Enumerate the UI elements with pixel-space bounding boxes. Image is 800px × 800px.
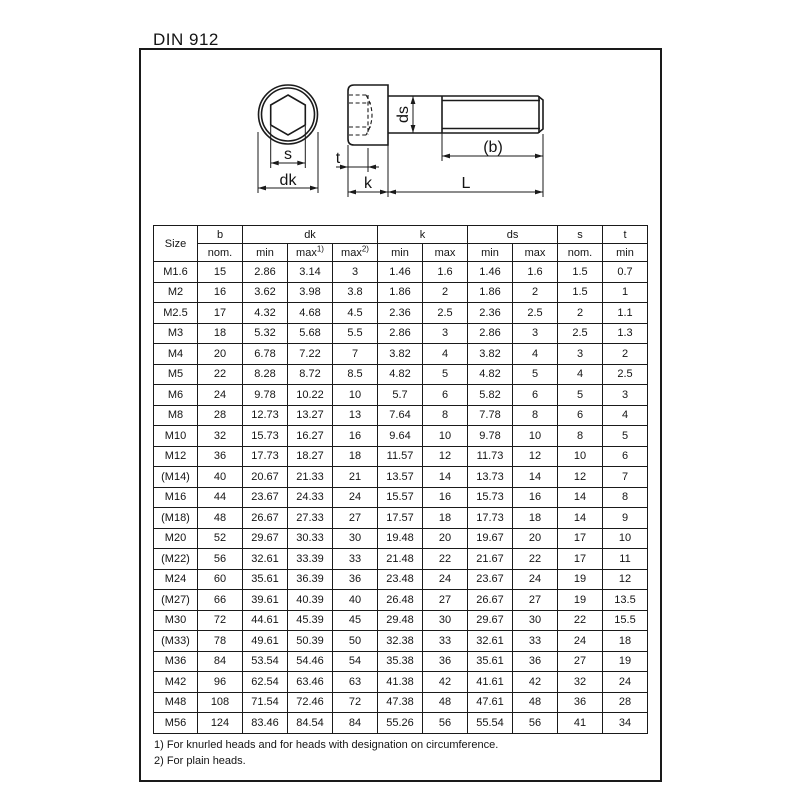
footnote-1: 1) For knurled heads and for heads with … [154,739,498,751]
table-cell: 27 [558,651,603,672]
table-cell: M56 [154,713,198,734]
table-cell: 22 [513,549,558,570]
table-cell: 47.38 [378,692,423,713]
table-cell: 62.54 [243,672,288,693]
table-cell: 36.39 [288,569,333,590]
subheader-ds-max: max [513,244,558,262]
table-cell: 50.39 [288,631,333,652]
table-cell: 5.5 [333,323,378,344]
table-cell: 9.78 [243,385,288,406]
table-row: (M14)4020.6721.332113.571413.7314127 [154,467,648,488]
table-row: M4206.787.2273.8243.82432 [154,344,648,365]
table-cell: 35.61 [243,569,288,590]
table-cell: 45.39 [288,610,333,631]
table-cell: M2 [154,282,198,303]
table-cell: 40 [333,590,378,611]
table-cell: 18 [513,508,558,529]
table-cell: 8 [513,405,558,426]
table-cell: 47.61 [468,692,513,713]
table-cell: 49.61 [243,631,288,652]
table-cell: 27 [513,590,558,611]
table-cell: 27.33 [288,508,333,529]
table-cell: 3 [423,323,468,344]
table-row: M103215.7316.27169.64109.781085 [154,426,648,447]
table-cell: 10 [603,528,648,549]
table-cell: 4.32 [243,303,288,324]
table-cell: 33 [513,631,558,652]
table-row: M368453.5454.465435.383635.61362719 [154,651,648,672]
table-cell: 8 [423,405,468,426]
table-cell: 32.61 [468,631,513,652]
table-cell: 23.67 [243,487,288,508]
table-cell: 8.72 [288,364,333,385]
table-cell: 20.67 [243,467,288,488]
col-header-ds: ds [468,226,558,244]
table-cell: 5.32 [243,323,288,344]
table-cell: 55.26 [378,713,423,734]
side-view: t k L (b) ds [336,85,543,197]
table-cell: 1.3 [603,323,648,344]
table-cell: 27 [333,508,378,529]
col-header-size: Size [154,226,198,262]
table-cell: 27 [423,590,468,611]
table-cell: 84 [333,713,378,734]
table-row: M164423.6724.332415.571615.7316148 [154,487,648,508]
table-cell: 6 [513,385,558,406]
table-cell: 24 [558,631,603,652]
table-cell: 18.27 [288,446,333,467]
table-cell: 7.64 [378,405,423,426]
dim-k: k [348,175,388,194]
table-cell: 24 [423,569,468,590]
dim-dk: dk [258,172,318,190]
table-cell: 55.54 [468,713,513,734]
table-cell: 72 [333,692,378,713]
table-cell: 10 [333,385,378,406]
table-header: Size b dk k ds s t nom. min max1) max2) … [154,226,648,262]
table-row: M2163.623.983.81.8621.8621.51 [154,282,648,303]
table-cell: M24 [154,569,198,590]
table-cell: 36 [558,692,603,713]
table-cell: 33.39 [288,549,333,570]
table-cell: 4.82 [378,364,423,385]
table-cell: 32 [558,672,603,693]
table-cell: 2 [603,344,648,365]
table-row: M82812.7313.27137.6487.78864 [154,405,648,426]
table-cell: 23.48 [378,569,423,590]
table-cell: 26.67 [468,590,513,611]
table-cell: 2.5 [513,303,558,324]
table-cell: 30 [333,528,378,549]
table-cell: 60 [198,569,243,590]
table-cell: 17 [558,528,603,549]
table-cell: (M22) [154,549,198,570]
table-cell: 13.57 [378,467,423,488]
label-dk: dk [280,172,298,189]
table-cell: 0.7 [603,262,648,283]
table-cell: 2.86 [468,323,513,344]
table-cell: 16.27 [288,426,333,447]
table-row: (M33)7849.6150.395032.383332.61332418 [154,631,648,652]
table-cell: 13.27 [288,405,333,426]
table-cell: 9.78 [468,426,513,447]
screw-drawing: s dk [240,80,560,202]
table-cell: 24 [333,487,378,508]
table-cell: 9 [603,508,648,529]
table-cell: 19 [558,590,603,611]
table-cell: 5 [603,426,648,447]
table-cell: 4 [513,344,558,365]
dim-ds: ds [395,96,415,133]
table-cell: 8.5 [333,364,378,385]
table-cell: 1.6 [423,262,468,283]
table-cell: 22 [198,364,243,385]
table-cell: 10 [558,446,603,467]
footnote-ref-2: 2) [362,244,369,253]
table-cell: 8 [558,426,603,447]
table-cell: 20 [423,528,468,549]
table-cell: 20 [513,528,558,549]
table-cell: 23.67 [468,569,513,590]
table-cell: 6.78 [243,344,288,365]
table-cell: 35.61 [468,651,513,672]
table-cell: 10.22 [288,385,333,406]
table-cell: 1.86 [468,282,513,303]
table-cell: 9.64 [378,426,423,447]
table-cell: 63.46 [288,672,333,693]
table-row: M6249.7810.22105.765.82653 [154,385,648,406]
table-cell: 24 [603,672,648,693]
table-cell: M12 [154,446,198,467]
table-cell: 18 [423,508,468,529]
table-cell: 18 [333,446,378,467]
label-k: k [364,175,373,192]
table-cell: 12 [558,467,603,488]
table-cell: 12 [513,446,558,467]
table-cell: 6 [423,385,468,406]
table-cell: 84.54 [288,713,333,734]
table-cell: 72.46 [288,692,333,713]
table-cell: (M14) [154,467,198,488]
table-cell: 5.82 [468,385,513,406]
table-row: M5612483.4684.548455.265655.54564134 [154,713,648,734]
table-cell: 16 [198,282,243,303]
table-cell: 16 [423,487,468,508]
table-cell: M30 [154,610,198,631]
table-cell: 7 [603,467,648,488]
subheader-k-max: max [423,244,468,262]
table-cell: 54.46 [288,651,333,672]
table-row: (M22)5632.6133.393321.482221.67221711 [154,549,648,570]
table-cell: 48 [423,692,468,713]
table-cell: 32.38 [378,631,423,652]
table-cell: 4.68 [288,303,333,324]
table-cell: 13.5 [603,590,648,611]
table-row: M123617.7318.271811.571211.7312106 [154,446,648,467]
col-header-k: k [378,226,468,244]
table-cell: M3 [154,323,198,344]
table-cell: 3.82 [468,344,513,365]
col-header-s: s [558,226,603,244]
table-cell: 53.54 [243,651,288,672]
table-cell: 4 [558,364,603,385]
table-cell: 4.82 [468,364,513,385]
table-row: M429662.5463.466341.384241.61423224 [154,672,648,693]
label-ds: ds [395,106,412,123]
table-cell: 28 [603,692,648,713]
table-cell: 1.5 [558,282,603,303]
table-cell: 1.46 [468,262,513,283]
table-cell: M42 [154,672,198,693]
col-header-b: b [198,226,243,244]
table-cell: 96 [198,672,243,693]
table-row: M2.5174.324.684.52.362.52.362.521.1 [154,303,648,324]
table-cell: 2.5 [603,364,648,385]
table-cell: 1.6 [513,262,558,283]
table-cell: 108 [198,692,243,713]
table-cell: 5.68 [288,323,333,344]
table-cell: M16 [154,487,198,508]
col-header-dk: dk [243,226,378,244]
table-row: (M27)6639.6140.394026.482726.67271913.5 [154,590,648,611]
table-cell: 7 [333,344,378,365]
table-cell: 12 [603,569,648,590]
table-cell: 26.48 [378,590,423,611]
table-cell: 3.98 [288,282,333,303]
table-cell: 63 [333,672,378,693]
table-cell: 2.36 [378,303,423,324]
dim-b: (b) [442,139,543,158]
table-cell: 10 [513,426,558,447]
table-cell: 40.39 [288,590,333,611]
table-cell: 20 [198,344,243,365]
table-cell: 6 [603,446,648,467]
table-cell: 16 [333,426,378,447]
table-cell: M36 [154,651,198,672]
subheader-dk-min: min [243,244,288,262]
table-cell: 36 [333,569,378,590]
table-cell: 45 [333,610,378,631]
table-cell: 29.67 [243,528,288,549]
table-cell: 14 [558,508,603,529]
table-cell: 66 [198,590,243,611]
table-cell: 2 [423,282,468,303]
table-cell: 19 [558,569,603,590]
dimensions-table: Size b dk k ds s t nom. min max1) max2) … [153,225,648,734]
table-cell: 5.7 [378,385,423,406]
table-cell: 12.73 [243,405,288,426]
table-row: M3185.325.685.52.8632.8632.51.3 [154,323,648,344]
table-cell: 3 [558,344,603,365]
thread [442,96,543,133]
table-cell: 41.61 [468,672,513,693]
table-cell: 83.46 [243,713,288,734]
table-cell: 17.73 [468,508,513,529]
hex-socket [271,95,306,135]
table-cell: 24 [198,385,243,406]
table-cell: 3 [513,323,558,344]
table-cell: 30 [513,610,558,631]
footnote-ref-1: 1) [317,244,324,253]
table-cell: 2.86 [378,323,423,344]
table-cell: 36 [513,651,558,672]
table-cell: 5 [513,364,558,385]
table-cell: 1.86 [378,282,423,303]
subheader-ds-min: min [468,244,513,262]
table-row: M307244.6145.394529.483029.67302215.5 [154,610,648,631]
table-cell: 14 [513,467,558,488]
table-cell: 2.36 [468,303,513,324]
table-cell: 1.46 [378,262,423,283]
table-cell: M48 [154,692,198,713]
col-header-t: t [603,226,648,244]
table-cell: 56 [513,713,558,734]
table-cell: 17.57 [378,508,423,529]
table-cell: 14 [423,467,468,488]
table-cell: 36 [423,651,468,672]
table-cell: 56 [198,549,243,570]
footnote-2: 2) For plain heads. [154,755,246,767]
table-cell: 18 [198,323,243,344]
front-view: s dk [258,85,318,193]
table-cell: 11.57 [378,446,423,467]
table-cell: 32 [198,426,243,447]
table-cell: 17 [198,303,243,324]
table-cell: 2.5 [558,323,603,344]
table-cell: 30.33 [288,528,333,549]
table-cell: 2 [513,282,558,303]
table-cell: 15.57 [378,487,423,508]
table-cell: 48 [198,508,243,529]
table-cell: 4 [423,344,468,365]
table-cell: 22 [423,549,468,570]
table-cell: 40 [198,467,243,488]
table-cell: 10 [423,426,468,447]
table-cell: 15.73 [468,487,513,508]
table-cell: 21.48 [378,549,423,570]
table-cell: 28 [198,405,243,426]
table-cell: 22 [558,610,603,631]
side-extension-lines [348,133,543,197]
subheader-dk-max2: max2) [333,244,378,262]
table-cell: 44 [198,487,243,508]
hidden-socket-lines [349,95,372,135]
table-row: M246035.6136.393623.482423.67241912 [154,569,648,590]
table-cell: 84 [198,651,243,672]
table-cell: 19.67 [468,528,513,549]
table-cell: 34 [603,713,648,734]
table-cell: 33 [423,631,468,652]
subheader-b-nom: nom. [198,244,243,262]
table-cell: 50 [333,631,378,652]
table-cell: 2.86 [243,262,288,283]
table-cell: 26.67 [243,508,288,529]
table-cell: 72 [198,610,243,631]
table-cell: 12 [423,446,468,467]
table-cell: 7.78 [468,405,513,426]
table-cell: 48 [513,692,558,713]
table-cell: 3.8 [333,282,378,303]
table-cell: 35.38 [378,651,423,672]
table-cell: 16 [513,487,558,508]
label-s: s [284,146,292,163]
page-title: DIN 912 [153,30,219,50]
table-row: M4810871.5472.467247.384847.61483628 [154,692,648,713]
table-row: (M18)4826.6727.332717.571817.7318149 [154,508,648,529]
table-cell: 24.33 [288,487,333,508]
table-cell: 3.62 [243,282,288,303]
table-cell: 4 [603,405,648,426]
table-cell: 41.38 [378,672,423,693]
table-cell: 3.14 [288,262,333,283]
table-cell: 32.61 [243,549,288,570]
table-cell: 8 [603,487,648,508]
table-cell: 13 [333,405,378,426]
table-cell: 30 [423,610,468,631]
table-cell: 56 [423,713,468,734]
table-cell: 5 [423,364,468,385]
label-b: (b) [483,139,503,156]
table-cell: 1.5 [558,262,603,283]
table-cell: 6 [558,405,603,426]
table-cell: 14 [558,487,603,508]
table-cell: (M27) [154,590,198,611]
table-cell: 71.54 [243,692,288,713]
label-t: t [336,150,341,167]
label-L: L [462,175,471,192]
table-cell: 17 [558,549,603,570]
table-cell: 78 [198,631,243,652]
table-cell: 36 [198,446,243,467]
table-cell: M6 [154,385,198,406]
table-cell: 19.48 [378,528,423,549]
table-cell: 39.61 [243,590,288,611]
table-cell: M8 [154,405,198,426]
dim-L: L [388,175,543,194]
table-cell: 11.73 [468,446,513,467]
table-cell: 29.67 [468,610,513,631]
table-cell: 41 [558,713,603,734]
table-cell: 5 [558,385,603,406]
table-cell: M2.5 [154,303,198,324]
dim-t: t [336,150,379,169]
table-cell: M4 [154,344,198,365]
table-cell: 3.82 [378,344,423,365]
table-cell: 54 [333,651,378,672]
table-cell: 24 [513,569,558,590]
table-cell: 52 [198,528,243,549]
dim-s: s [271,146,306,165]
table-cell: 4.5 [333,303,378,324]
table-cell: 124 [198,713,243,734]
subheader-k-min: min [378,244,423,262]
table-cell: 19 [603,651,648,672]
subheader-t-min: min [603,244,648,262]
table-cell: M1.6 [154,262,198,283]
subheader-s-nom: nom. [558,244,603,262]
table-cell: 21 [333,467,378,488]
table-cell: 21.33 [288,467,333,488]
table-body: M1.6152.863.1431.461.61.461.61.50.7M2163… [154,262,648,734]
table-cell: (M33) [154,631,198,652]
table-cell: 13.73 [468,467,513,488]
table-cell: 18 [603,631,648,652]
table-cell: 33 [333,549,378,570]
table-cell: M20 [154,528,198,549]
table-cell: 15 [198,262,243,283]
table-cell: 42 [423,672,468,693]
table-cell: (M18) [154,508,198,529]
